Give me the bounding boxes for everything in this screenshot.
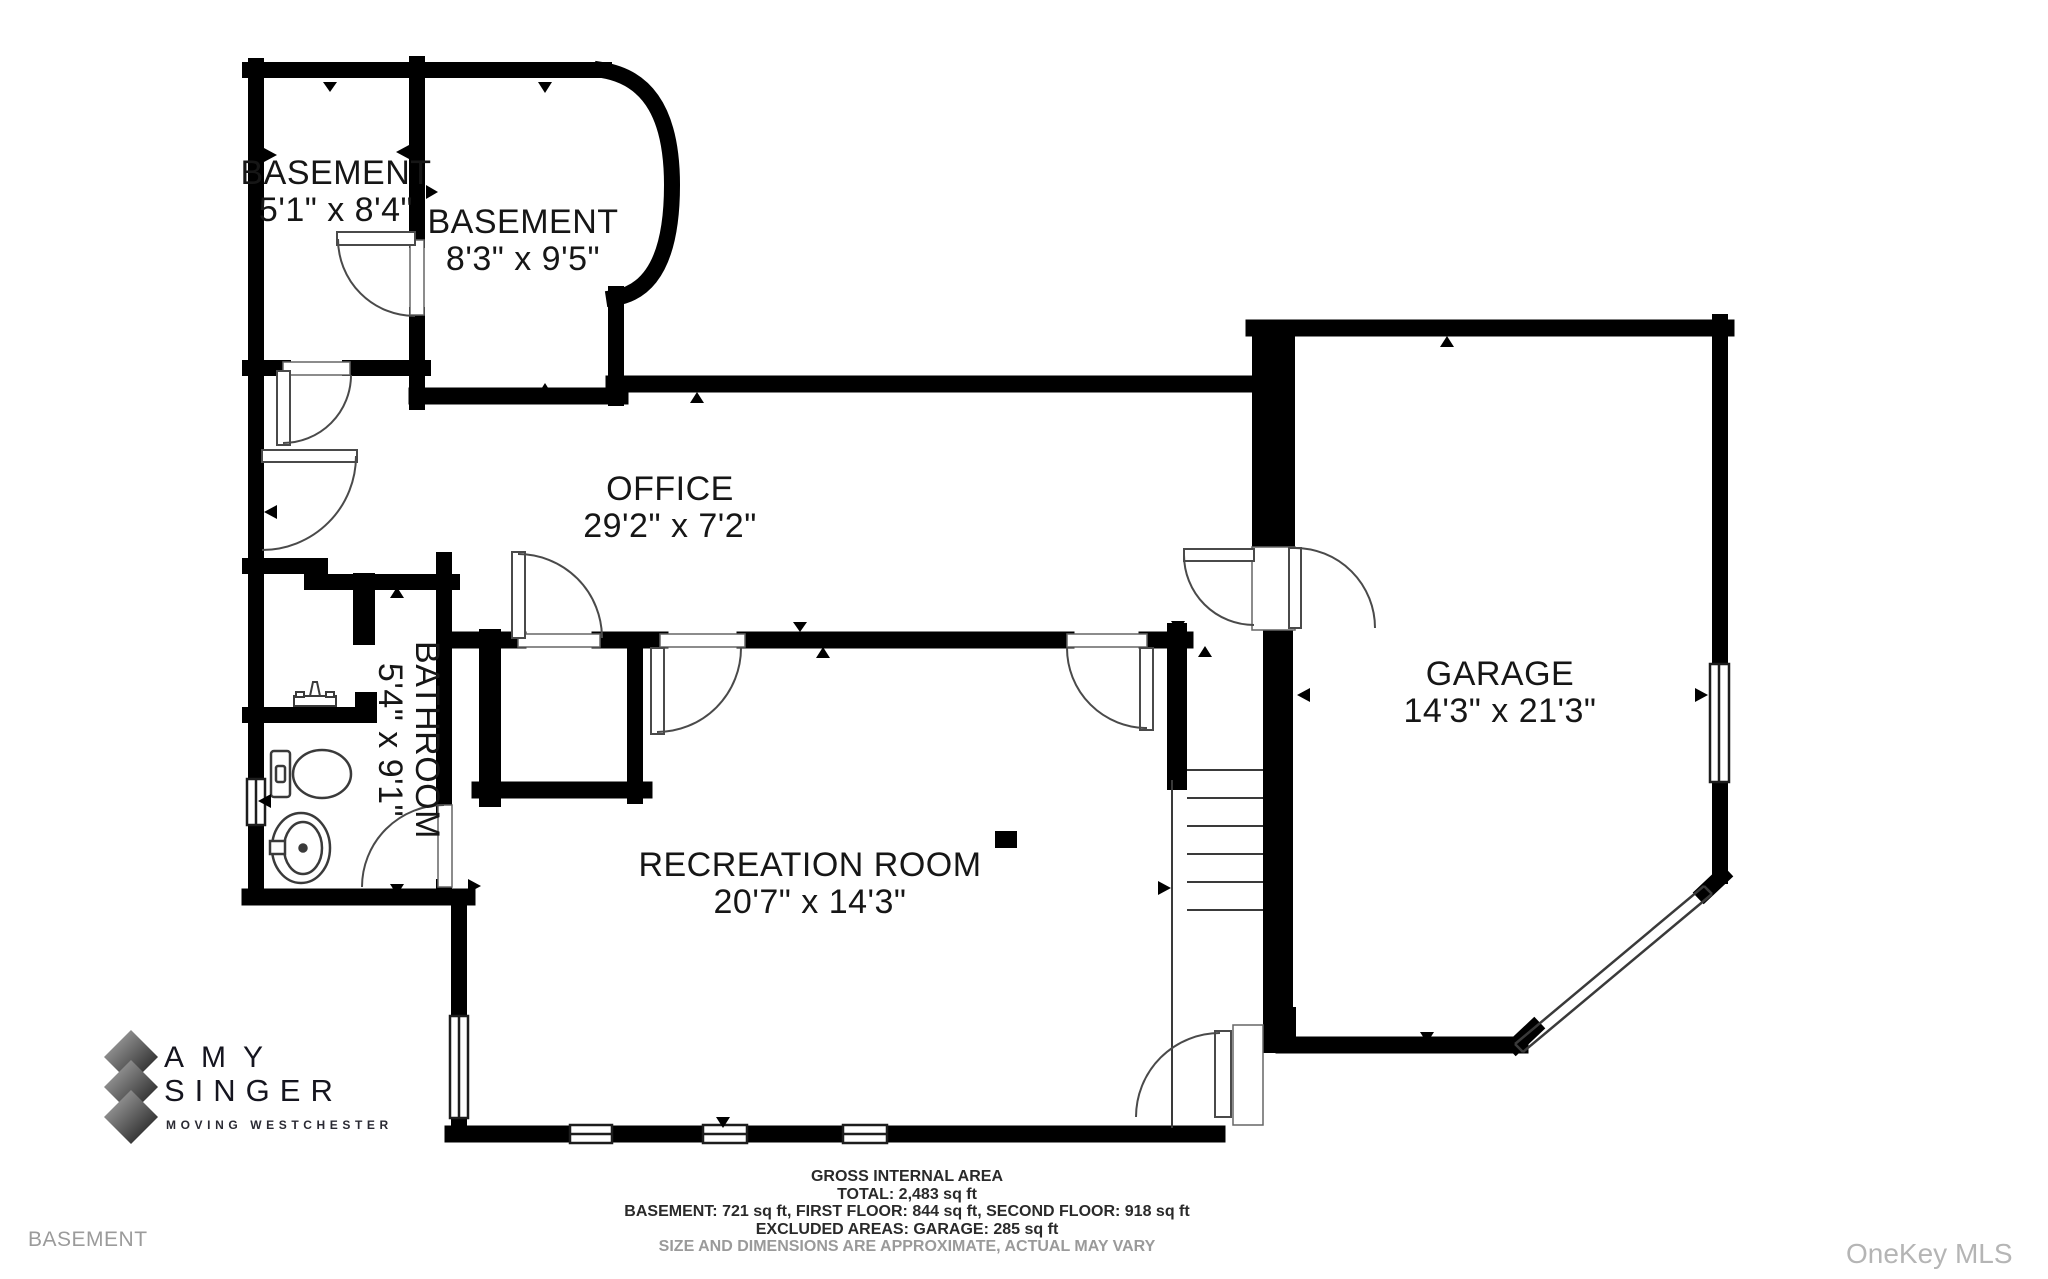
window-recreation-bottom-2 xyxy=(703,1125,747,1143)
floor-name-label: BASEMENT xyxy=(28,1228,148,1252)
door-closet xyxy=(512,552,602,638)
room-label-office: OFFICE 29'2" x 7'2" xyxy=(583,471,757,545)
room-dims: 8'3" x 9'5" xyxy=(427,241,618,278)
laundry-faucet-icon xyxy=(294,682,336,706)
logo-tagline: MOVING WESTCHESTER xyxy=(166,1118,393,1132)
window-recreation-left xyxy=(450,1016,468,1118)
room-name: BASEMENT xyxy=(240,155,431,192)
room-name: BATHROOM xyxy=(408,641,445,839)
toilet-icon xyxy=(271,750,351,798)
room-name: BASEMENT xyxy=(427,204,618,241)
window-recreation-bottom-1 xyxy=(570,1125,612,1143)
area-summary-total: TOTAL: 2,483 sq ft xyxy=(624,1186,1189,1204)
door-office-recreation xyxy=(651,648,741,734)
room-dims: 5'1" x 8'4" xyxy=(240,192,431,229)
area-summary-excluded: EXCLUDED AREAS: GARAGE: 285 sq ft xyxy=(624,1221,1189,1239)
room-label-basement-small: BASEMENT 5'1" x 8'4" xyxy=(240,155,431,229)
garage-door-icon xyxy=(1515,886,1712,1052)
room-label-bathroom: BATHROOM 5'4" x 9'1" xyxy=(371,641,445,839)
room-dims: 29'2" x 7'2" xyxy=(583,508,757,545)
door-basement1-hall xyxy=(277,371,351,445)
logo-name-line1: AMY xyxy=(164,1041,280,1075)
area-summary-floors: BASEMENT: 721 sq ft, FIRST FLOOR: 844 sq… xyxy=(624,1203,1189,1221)
room-label-basement-large: BASEMENT 8'3" x 9'5" xyxy=(427,204,618,278)
agency-logo: AMY SINGER MOVING WESTCHESTER xyxy=(100,1025,400,1145)
door-office-stairs xyxy=(1067,648,1153,730)
door-garage-left-leaf xyxy=(1184,549,1254,625)
room-dims: 5'4" x 9'1" xyxy=(371,641,408,839)
door-recreation-exit xyxy=(1136,1031,1231,1117)
room-dims: 20'7" x 14'3" xyxy=(638,884,981,921)
room-name: GARAGE xyxy=(1404,656,1597,693)
door-garage-right-leaf xyxy=(1289,548,1375,628)
door-basement-divider xyxy=(337,232,415,316)
area-summary-title: GROSS INTERNAL AREA xyxy=(624,1168,1189,1186)
area-summary-disclaimer: SIZE AND DIMENSIONS ARE APPROXIMATE, ACT… xyxy=(624,1238,1189,1256)
room-dims: 14'3" x 21'3" xyxy=(1404,693,1597,730)
room-name: RECREATION ROOM xyxy=(638,847,981,884)
window-garage-right xyxy=(1710,664,1729,782)
window-recreation-bottom-3 xyxy=(843,1125,887,1143)
logo-name-line2: SINGER xyxy=(164,1073,343,1109)
room-name: OFFICE xyxy=(583,471,757,508)
post-column xyxy=(995,831,1017,848)
floorplan-page: BASEMENT 5'1" x 8'4" BASEMENT 8'3" x 9'5… xyxy=(0,0,2048,1279)
room-label-garage: GARAGE 14'3" x 21'3" xyxy=(1404,656,1597,730)
door-hallway xyxy=(262,450,357,550)
room-label-recreation: RECREATION ROOM 20'7" x 14'3" xyxy=(638,847,981,921)
mls-watermark: OneKey MLS xyxy=(1846,1238,2013,1270)
sink-icon xyxy=(270,813,330,883)
area-summary: GROSS INTERNAL AREA TOTAL: 2,483 sq ft B… xyxy=(624,1168,1189,1256)
